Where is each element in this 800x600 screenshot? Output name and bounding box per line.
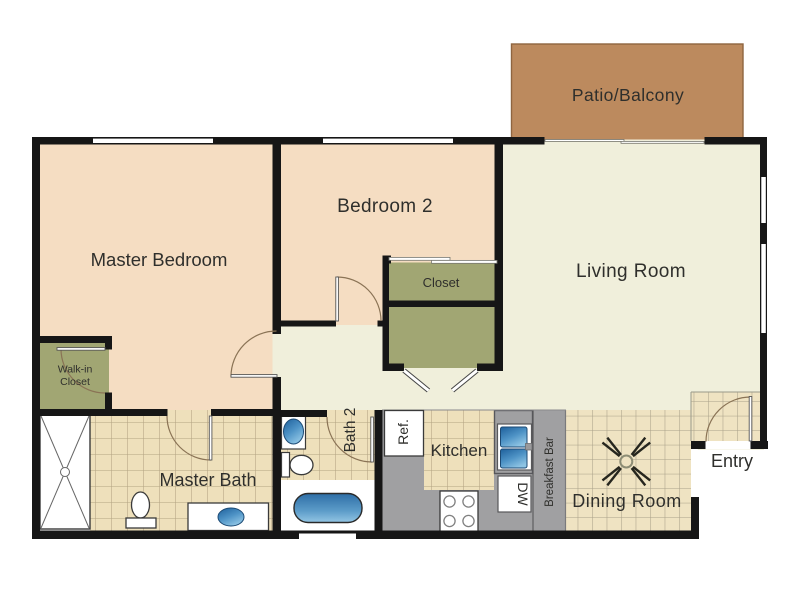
svg-text:DW: DW [515, 482, 531, 506]
svg-text:Closet: Closet [60, 376, 90, 388]
svg-text:Entry: Entry [711, 451, 753, 471]
svg-text:Bath 2: Bath 2 [342, 408, 359, 453]
svg-text:Breakfast Bar: Breakfast Bar [544, 437, 556, 507]
svg-text:Living Room: Living Room [576, 261, 686, 282]
svg-text:Closet: Closet [423, 275, 460, 290]
svg-text:Ref.: Ref. [395, 419, 411, 445]
svg-text:Kitchen: Kitchen [431, 441, 488, 460]
svg-text:Master Bath: Master Bath [159, 470, 256, 490]
svg-text:Patio/Balcony: Patio/Balcony [572, 85, 684, 105]
svg-text:Bedroom 2: Bedroom 2 [337, 196, 433, 217]
svg-text:Dining Room: Dining Room [572, 491, 682, 511]
svg-text:Walk-in: Walk-in [58, 364, 93, 376]
svg-text:Master Bedroom: Master Bedroom [91, 249, 228, 270]
